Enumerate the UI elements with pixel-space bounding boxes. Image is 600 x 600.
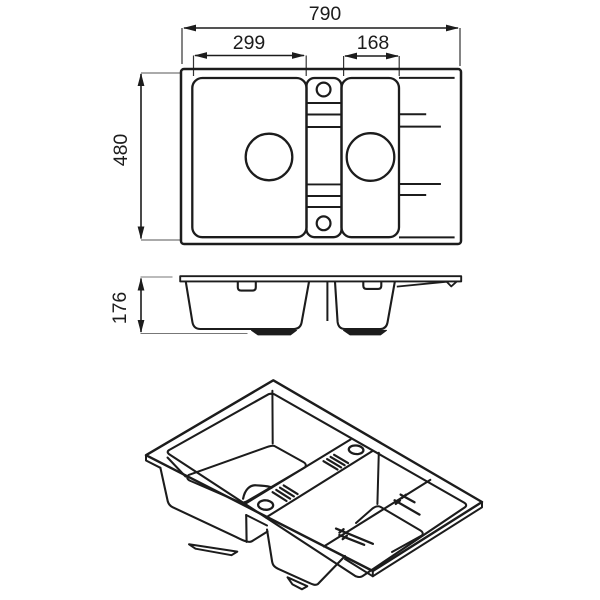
svg-text:168: 168 (357, 32, 390, 54)
svg-text:176: 176 (109, 292, 131, 325)
svg-text:299: 299 (233, 32, 266, 54)
svg-text:480: 480 (110, 134, 132, 167)
svg-text:790: 790 (309, 3, 342, 25)
